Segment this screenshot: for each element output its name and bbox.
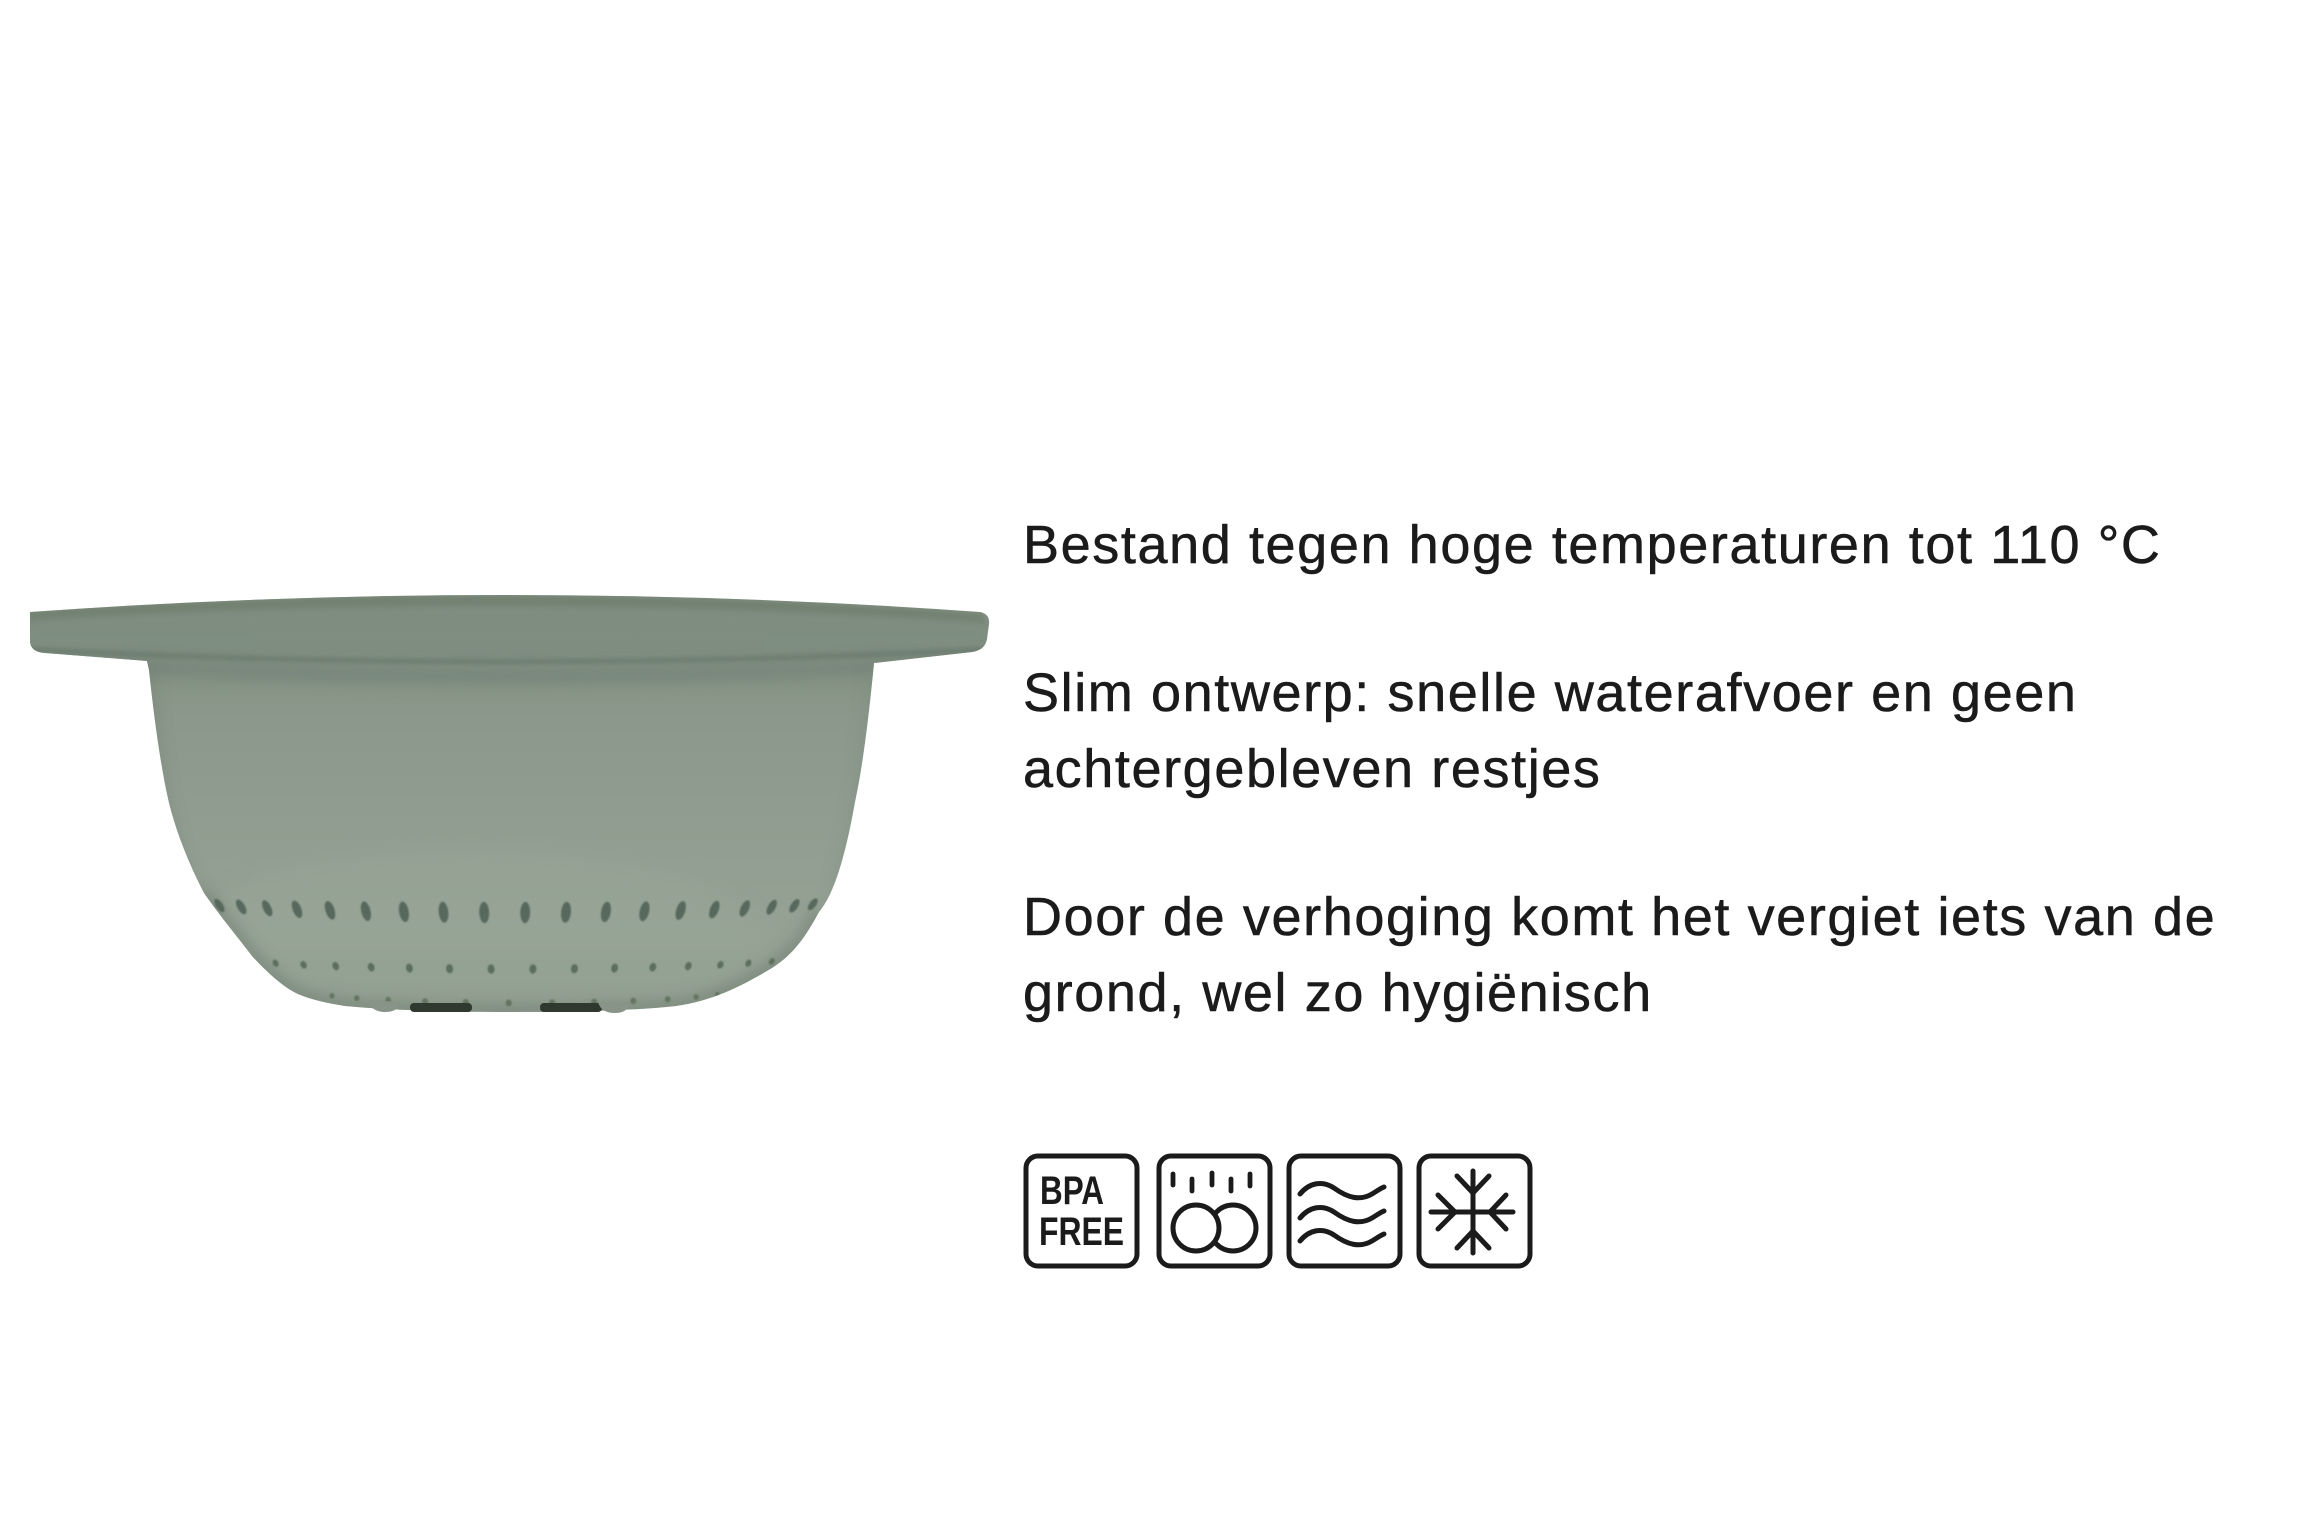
svg-text:BPA: BPA xyxy=(1040,1169,1104,1213)
svg-text:FREE: FREE xyxy=(1039,1210,1124,1254)
